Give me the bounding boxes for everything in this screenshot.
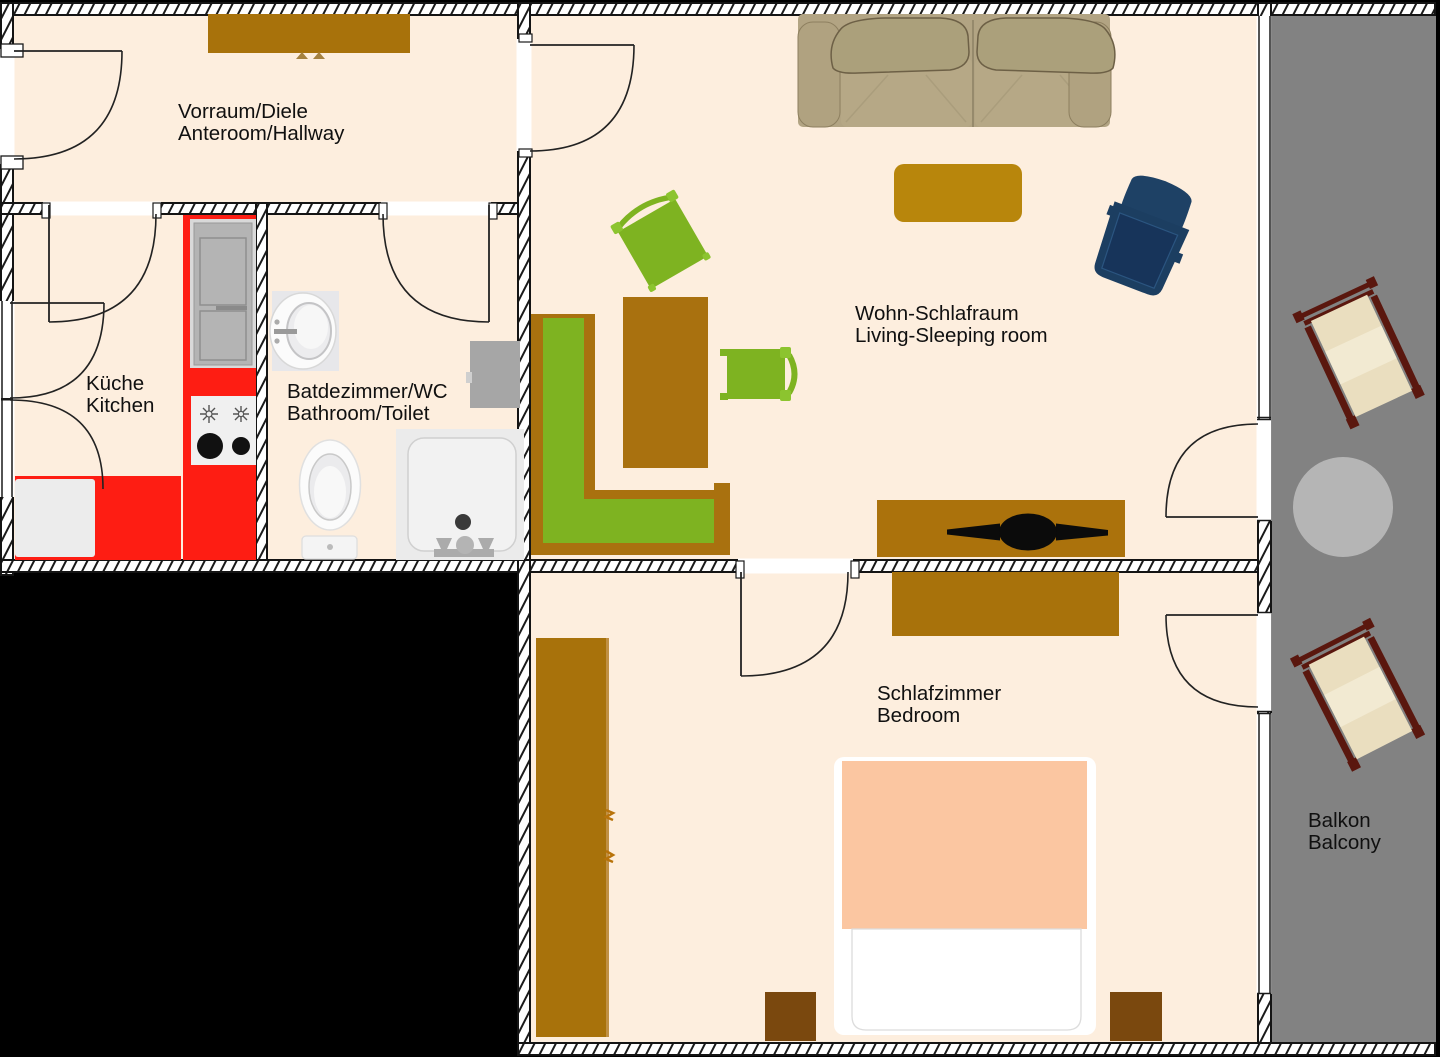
svg-text:Living-Sleeping room: Living-Sleeping room <box>855 324 1048 347</box>
svg-text:Küche: Küche <box>86 372 144 395</box>
svg-text:Bathroom/Toilet: Bathroom/Toilet <box>287 402 430 425</box>
svg-text:Vorraum/Diele: Vorraum/Diele <box>178 100 308 123</box>
svg-text:Balcony: Balcony <box>1308 831 1382 854</box>
svg-text:Kitchen: Kitchen <box>86 394 154 417</box>
svg-text:Anteroom/Hallway: Anteroom/Hallway <box>178 122 345 145</box>
svg-text:Wohn-Schlafraum: Wohn-Schlafraum <box>855 302 1019 325</box>
svg-text:Schlafzimmer: Schlafzimmer <box>877 682 1001 705</box>
svg-text:Bedroom: Bedroom <box>877 704 960 727</box>
svg-text:Batdezimmer/WC: Batdezimmer/WC <box>287 380 448 403</box>
svg-text:Balkon: Balkon <box>1308 809 1371 832</box>
